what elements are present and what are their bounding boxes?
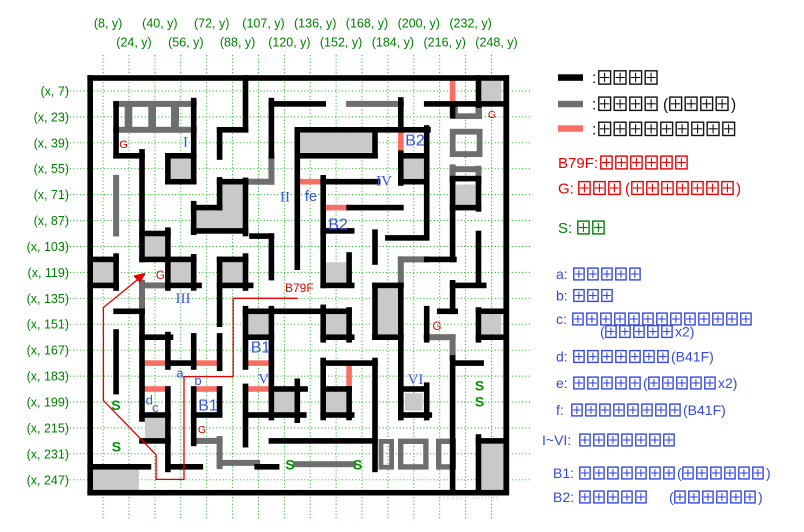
svg-text:(x, 103): (x, 103) — [27, 240, 69, 254]
svg-text:(72, y): (72, y) — [194, 17, 229, 31]
svg-text:(B41F): (B41F) — [671, 349, 714, 365]
svg-text:f:: f: — [556, 402, 564, 418]
svg-text:(x, 7): (x, 7) — [41, 85, 69, 99]
svg-text::: : — [592, 121, 596, 138]
svg-text:I: I — [183, 134, 188, 150]
svg-text:(: ( — [600, 324, 605, 340]
svg-text:(8, y): (8, y) — [94, 17, 122, 31]
svg-text:II: II — [280, 189, 290, 205]
svg-text:c:: c: — [556, 311, 567, 327]
svg-text:B2: B2 — [405, 133, 425, 150]
svg-text:S: S — [475, 378, 484, 394]
svg-text:(: ( — [625, 180, 630, 197]
svg-text::: : — [592, 96, 596, 113]
svg-text:(232, y): (232, y) — [449, 17, 491, 31]
svg-text:(x, 183): (x, 183) — [27, 370, 69, 384]
svg-text:a: a — [176, 366, 184, 381]
svg-text:(x, 119): (x, 119) — [28, 266, 69, 280]
svg-text:(: ( — [677, 465, 682, 481]
svg-text:B1:: B1: — [553, 465, 574, 481]
svg-text:(x, 151): (x, 151) — [27, 318, 69, 332]
svg-text:(88, y): (88, y) — [220, 36, 255, 50]
svg-text:(x, 87): (x, 87) — [34, 214, 69, 228]
svg-text:(120, y): (120, y) — [268, 36, 310, 50]
svg-text:V: V — [258, 371, 269, 387]
svg-text:VI: VI — [408, 372, 424, 388]
svg-text:S:: S: — [558, 220, 572, 237]
svg-text:B2: B2 — [328, 217, 348, 234]
svg-text:): ) — [758, 489, 763, 505]
svg-text:b: b — [194, 373, 201, 388]
svg-text:S: S — [353, 457, 362, 473]
svg-text:(248, y): (248, y) — [475, 36, 517, 50]
svg-text:S: S — [475, 394, 484, 410]
svg-text:(168, y): (168, y) — [346, 17, 388, 31]
svg-text:S: S — [111, 397, 120, 413]
svg-text:(184, y): (184, y) — [372, 36, 414, 50]
svg-text:B2:: B2: — [553, 489, 574, 505]
svg-text:(200, y): (200, y) — [398, 17, 440, 31]
svg-text:): ) — [736, 180, 741, 197]
svg-text:(B41F): (B41F) — [683, 402, 726, 418]
svg-text:B79F:: B79F: — [558, 155, 598, 172]
svg-text:B1: B1 — [198, 398, 218, 415]
svg-text:S: S — [285, 457, 294, 473]
svg-text:(x, 55): (x, 55) — [34, 162, 69, 176]
svg-text:d:: d: — [556, 349, 568, 365]
svg-text:(x, 215): (x, 215) — [27, 421, 69, 435]
svg-text:b:: b: — [556, 288, 568, 304]
svg-text::: : — [592, 70, 596, 87]
svg-text:(x, 231): (x, 231) — [27, 447, 69, 461]
svg-text:(x, 199): (x, 199) — [27, 396, 69, 410]
svg-text:IV: IV — [376, 174, 392, 190]
svg-text:I~VI:: I~VI: — [542, 432, 571, 448]
svg-text:(152, y): (152, y) — [320, 36, 362, 50]
svg-text:(x, 167): (x, 167) — [27, 344, 69, 358]
svg-text:(: ( — [663, 96, 669, 113]
svg-text:(x, 71): (x, 71) — [34, 188, 69, 202]
svg-text:G: G — [156, 270, 165, 282]
svg-text:G: G — [433, 321, 442, 333]
svg-text:c: c — [152, 400, 159, 415]
svg-text:(24, y): (24, y) — [116, 36, 151, 50]
svg-text:(x, 135): (x, 135) — [27, 292, 69, 306]
svg-text:(216, y): (216, y) — [424, 36, 466, 50]
svg-text:S: S — [112, 439, 121, 455]
svg-text:G: G — [119, 139, 128, 151]
svg-text:fe: fe — [305, 188, 318, 205]
svg-text:t e k e p o n . n e t / f a q: t e k e p o n . n e t / f a q — [439, 496, 498, 502]
svg-text:(136, y): (136, y) — [294, 17, 336, 31]
svg-text:x2): x2) — [718, 375, 737, 391]
svg-text:III: III — [176, 291, 191, 307]
svg-text:a:: a: — [556, 266, 568, 282]
svg-text:e:: e: — [556, 375, 568, 391]
svg-text:(x, 247): (x, 247) — [27, 473, 69, 487]
svg-text:(: ( — [643, 375, 648, 391]
svg-text:(40, y): (40, y) — [142, 17, 177, 31]
svg-text:(56, y): (56, y) — [168, 36, 203, 50]
svg-text:(: ( — [669, 489, 674, 505]
svg-text:B1: B1 — [251, 340, 271, 357]
svg-text:G: G — [488, 109, 496, 121]
svg-text:): ) — [766, 465, 771, 481]
svg-text:(x, 23): (x, 23) — [34, 110, 69, 124]
svg-text:(x, 39): (x, 39) — [34, 136, 69, 150]
svg-text:G:: G: — [558, 180, 574, 197]
svg-text:(107, y): (107, y) — [242, 17, 284, 31]
svg-text:G: G — [198, 424, 206, 436]
svg-text:): ) — [731, 96, 736, 113]
svg-text:x2): x2) — [675, 324, 694, 340]
svg-text:B79F: B79F — [285, 281, 314, 295]
